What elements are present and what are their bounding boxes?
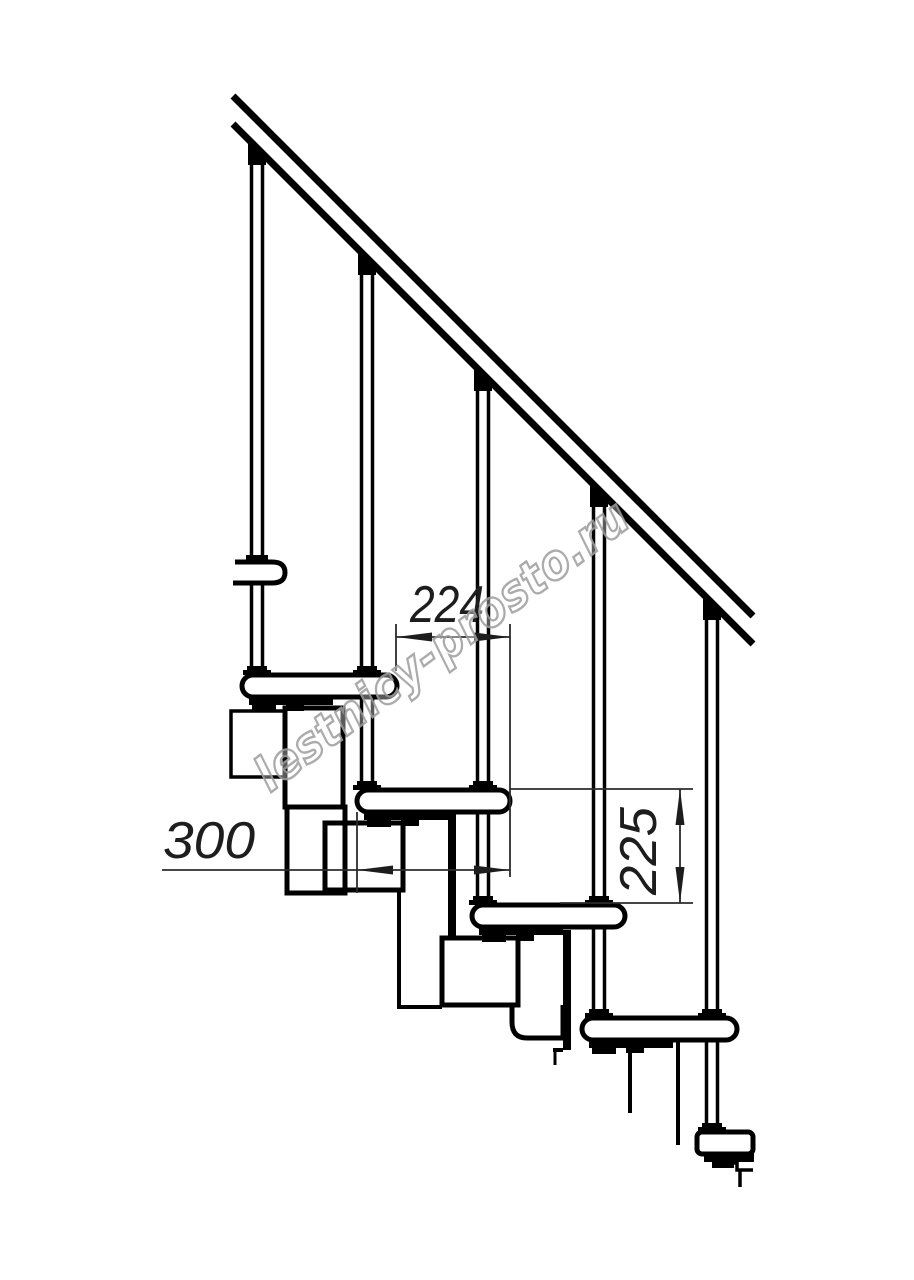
module-strut (448, 813, 456, 938)
dimension-label-riser: 225 (610, 806, 668, 896)
staircase-technical-drawing: 224 300 225 lestnicy-prosto.ru (0, 0, 914, 1280)
dimension-label-tread-depth: 300 (163, 812, 255, 870)
tread-bottom (697, 1132, 753, 1154)
tread (472, 905, 625, 927)
module-strut (563, 930, 571, 1050)
tread (357, 790, 510, 812)
staircase-drawing-page: 224 300 225 lestnicy-prosto.ru (0, 0, 914, 1280)
tread-upper-cut (233, 562, 285, 583)
tread (582, 1018, 737, 1040)
